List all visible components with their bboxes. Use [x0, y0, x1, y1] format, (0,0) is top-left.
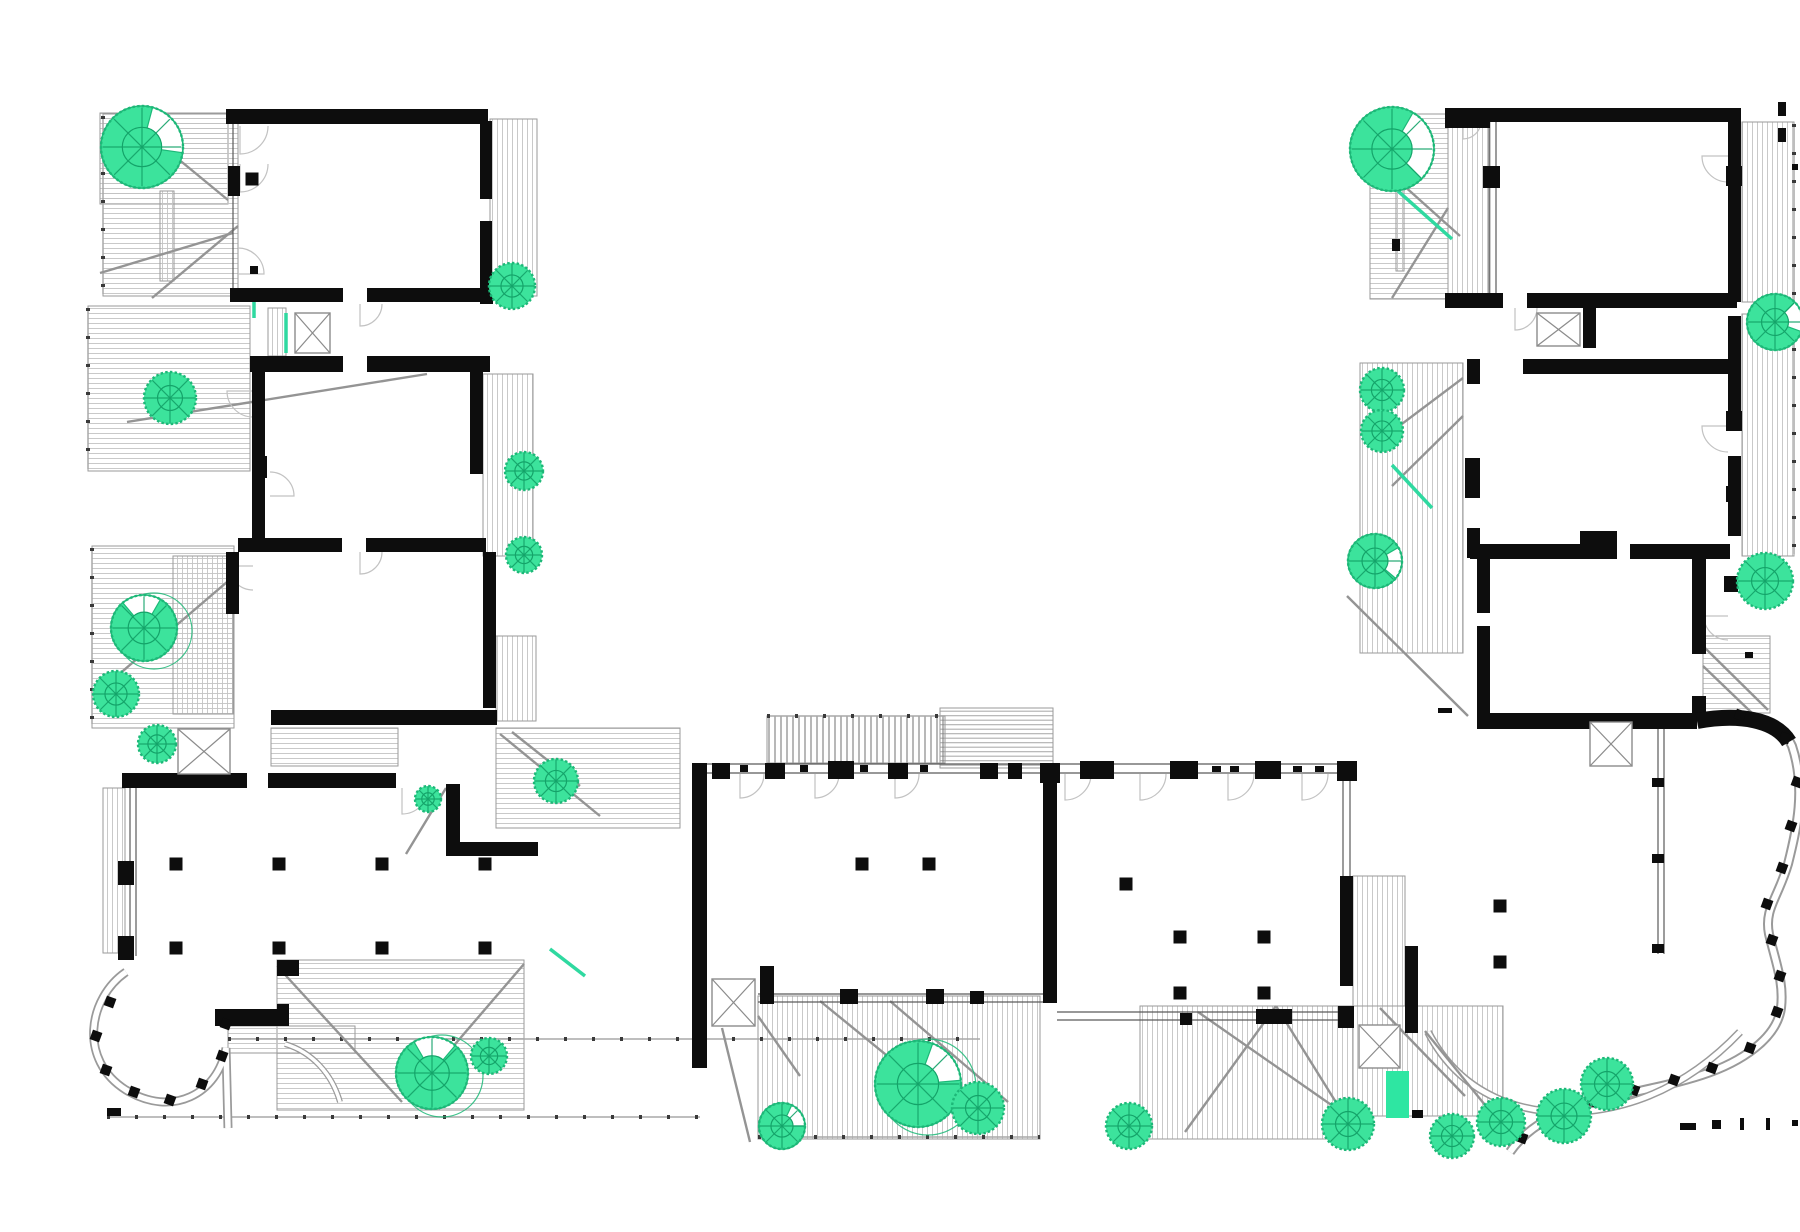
structural-column — [170, 858, 183, 871]
wall-pilaster — [1652, 854, 1664, 863]
deck-area — [1140, 1006, 1353, 1139]
wall-pilaster — [920, 765, 928, 772]
tree-symbol — [1581, 1058, 1633, 1110]
wall-pilaster — [1726, 166, 1742, 186]
tree-fan-symbol — [759, 1103, 805, 1149]
wall-segment — [480, 121, 492, 199]
elevator-core — [1590, 722, 1632, 766]
wall-segment — [1580, 531, 1617, 544]
wall-segment — [226, 552, 239, 614]
plan-mark — [1745, 652, 1753, 658]
elevator-core — [295, 313, 330, 353]
deck-area — [496, 728, 680, 828]
deck-area — [1742, 122, 1794, 302]
structural-column — [376, 942, 389, 955]
wall-pilaster — [888, 763, 908, 779]
wall-pilaster — [828, 761, 854, 779]
deck-area — [160, 191, 174, 281]
wall-pilaster — [740, 765, 748, 772]
left_loop-path — [94, 972, 228, 1128]
tree-symbol — [93, 671, 139, 717]
plan-mark — [1778, 102, 1786, 116]
deck-area — [268, 308, 286, 356]
door-swing-arc — [740, 774, 764, 798]
floor-plan-svg — [40, 16, 1800, 1216]
structural-column — [1120, 878, 1133, 891]
deck-area — [1742, 314, 1794, 556]
tree-symbol — [1322, 1098, 1374, 1150]
wall-segment — [1470, 544, 1617, 559]
deck-area — [271, 728, 398, 766]
wall-segment — [277, 960, 299, 976]
tree-symbol — [1106, 1103, 1152, 1149]
tree-symbol — [952, 1082, 1004, 1134]
wall-pilaster — [860, 765, 868, 772]
wall-pilaster — [118, 861, 134, 885]
wall-segment — [1692, 696, 1706, 713]
tree-symbol — [1361, 410, 1403, 452]
door-swing-arc — [360, 552, 382, 574]
wall-segment — [1477, 553, 1490, 613]
floor-plan — [40, 16, 1800, 1216]
tree-symbol — [138, 725, 176, 763]
wall-pilaster — [980, 763, 998, 779]
wall-pilaster — [1170, 761, 1198, 779]
wall-segment — [1477, 626, 1490, 713]
wall-segment — [277, 1004, 289, 1026]
wall-pilaster — [1080, 761, 1114, 779]
wall-pilaster — [1212, 766, 1221, 772]
deck-area — [1353, 876, 1405, 1006]
wall-segment — [1405, 946, 1418, 1033]
door-swing-arc — [1302, 774, 1328, 800]
wall-pilaster — [470, 399, 483, 413]
highlight-green-rect — [1386, 1071, 1409, 1118]
walkway-post — [1791, 776, 1800, 789]
deck-area — [173, 556, 233, 714]
wall-segment — [367, 288, 490, 302]
tree-symbol — [1360, 368, 1404, 412]
wall-segment — [271, 710, 497, 725]
structural-column — [170, 942, 183, 955]
wall-pilaster — [712, 763, 730, 779]
wall-segment — [122, 773, 247, 788]
door-swing-arc — [1702, 156, 1728, 182]
wall-pilaster — [765, 763, 785, 779]
wall-segment — [1728, 122, 1741, 302]
plan-mark — [1712, 1120, 1721, 1129]
floor-plan-canvas — [40, 16, 1800, 1216]
walls-layer — [122, 108, 1789, 1068]
wall-pilaster — [926, 989, 944, 1004]
teal-accent-line — [550, 949, 585, 976]
wall-pilaster — [800, 765, 808, 772]
door-swing-arc — [240, 126, 268, 154]
wall-segment — [1467, 359, 1480, 384]
deck-area — [496, 636, 536, 721]
wall-segment — [226, 109, 488, 124]
tree-symbol — [1477, 1098, 1525, 1146]
wall-segment — [238, 538, 342, 552]
structural-column — [246, 173, 259, 186]
tree-symbol — [1737, 553, 1793, 609]
wall-segment — [760, 966, 774, 1004]
tree-fan-symbol — [1747, 294, 1800, 350]
structural-column — [1258, 931, 1271, 944]
wall-segment — [1692, 553, 1706, 654]
curved-wall-segment — [1697, 718, 1789, 742]
deck-area — [1448, 122, 1490, 294]
wall-segment — [483, 552, 496, 708]
door-swing-arc — [1515, 308, 1537, 330]
door-swing-arc — [270, 472, 294, 496]
wall-segment — [1630, 544, 1730, 559]
tree-symbol — [144, 372, 196, 424]
stair-treads — [940, 708, 1053, 768]
wall-pilaster — [970, 991, 984, 1004]
wall-segment — [692, 763, 707, 1068]
structural-column — [1494, 900, 1507, 913]
structural-column — [1258, 987, 1271, 1000]
plan-mark — [1766, 1118, 1770, 1130]
tree-fan-symbol — [1350, 107, 1434, 191]
balcony-railing — [767, 716, 945, 763]
wall-segment — [1477, 713, 1697, 729]
wall-pilaster — [1724, 576, 1738, 592]
wall-pilaster — [1315, 766, 1324, 772]
structural-column — [273, 858, 286, 871]
door-swing-arc — [1228, 774, 1254, 800]
structural-column — [479, 942, 492, 955]
wall-pilaster — [1293, 766, 1302, 772]
plan-mark — [107, 1108, 121, 1116]
structural-column — [479, 858, 492, 871]
structural-column — [856, 858, 869, 871]
wall-pilaster — [1337, 761, 1357, 781]
tree-symbol — [1537, 1089, 1591, 1143]
highlight-layer — [1386, 1071, 1409, 1118]
wall-pilaster — [1255, 761, 1281, 779]
wall-segment — [230, 288, 343, 302]
elevator-core — [1537, 313, 1580, 346]
teal-accents-layer — [254, 191, 1452, 976]
structural-column — [1494, 956, 1507, 969]
wall-segment — [470, 356, 483, 374]
tree-symbol — [534, 759, 578, 803]
elevator-core — [178, 729, 230, 774]
wall-segment — [446, 842, 538, 856]
wall-pilaster — [1180, 1013, 1192, 1025]
door-swing-arc — [360, 304, 382, 326]
tree-symbol — [505, 452, 543, 490]
wall-segment — [1465, 458, 1480, 498]
tree-symbol — [471, 1038, 507, 1074]
plan-mark — [1412, 1110, 1423, 1118]
wall-pilaster — [1338, 1006, 1354, 1028]
tree-symbol — [506, 537, 542, 573]
plan-mark — [1680, 1123, 1696, 1130]
wall-pilaster — [1726, 486, 1740, 502]
structural-column — [923, 858, 936, 871]
wall-pilaster — [1483, 166, 1500, 188]
elevator-core — [1359, 1025, 1400, 1068]
wall-pilaster — [1040, 763, 1060, 783]
door-swing-arc — [1702, 426, 1728, 452]
brace-line — [722, 1028, 750, 1142]
wall-segment — [470, 374, 483, 474]
wall-segment — [252, 366, 265, 538]
plan-mark — [250, 266, 258, 274]
plan-mark — [1792, 1120, 1798, 1126]
wall-segment — [366, 538, 486, 552]
structural-column — [1174, 931, 1187, 944]
plan-mark — [1778, 128, 1786, 142]
plan-mark — [1740, 1118, 1744, 1130]
wall-pilaster — [252, 456, 267, 478]
wall-segment — [1527, 293, 1737, 308]
wall-pilaster — [1230, 766, 1239, 772]
wall-segment — [1445, 293, 1503, 308]
wall-segment — [1445, 108, 1490, 128]
wall-pilaster — [1392, 239, 1400, 251]
wall-segment — [1043, 774, 1057, 1003]
decks-layer — [88, 113, 1794, 1139]
wall-pilaster — [840, 989, 858, 1004]
tree-symbol — [415, 786, 441, 812]
tree-fan-symbol — [101, 106, 183, 188]
wall-pilaster — [228, 166, 240, 196]
tree-symbol — [1430, 1114, 1474, 1158]
wall-pilaster — [1652, 778, 1664, 787]
wall-segment — [1583, 308, 1596, 348]
plan-mark — [1438, 708, 1452, 713]
wall-pilaster — [1008, 763, 1022, 779]
tree-symbol — [489, 263, 535, 309]
wall-pilaster — [1256, 1009, 1292, 1024]
plan-mark — [1792, 164, 1798, 170]
wall-pilaster — [1726, 411, 1742, 431]
wall-pilaster — [1652, 944, 1664, 953]
door-swing-arc — [1140, 774, 1166, 800]
structural-column — [376, 858, 389, 871]
structural-column — [273, 942, 286, 955]
elevator-core — [712, 979, 755, 1026]
wall-segment — [268, 773, 396, 788]
wall-segment — [1728, 316, 1741, 421]
wall-pilaster — [118, 936, 134, 960]
tree-fan-symbol — [1348, 534, 1402, 588]
wall-segment — [1340, 876, 1353, 986]
structural-column — [1174, 987, 1187, 1000]
wall-segment — [1523, 359, 1730, 374]
